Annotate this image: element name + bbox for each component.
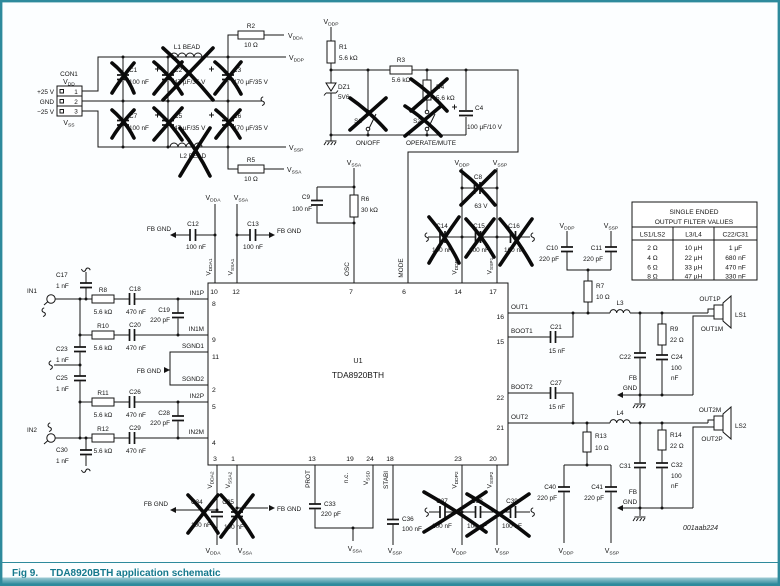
c23-value: 1 nF (56, 357, 69, 364)
r8-ref: R8 (99, 287, 108, 294)
svg-text:1 µF: 1 µF (729, 245, 742, 252)
resistor-r3 (390, 66, 412, 74)
ic-pin-21: 21 (496, 425, 504, 432)
r9-value: 22 Ω (670, 337, 684, 344)
r2-ref: R2 (247, 23, 256, 30)
c24-ref: C24 (671, 354, 683, 361)
r11-value: 5.6 kΩ (94, 412, 113, 419)
c36-ref: C36 (402, 516, 414, 523)
operate-mute-label: OPERATE/MUTE (406, 140, 456, 147)
c40-value: 220 pF (537, 495, 557, 502)
con1-pin-3: 3 (74, 109, 78, 116)
r5-ref: R5 (247, 157, 256, 164)
c28-ref: C28 (158, 410, 170, 417)
c30-ref: C30 (56, 447, 68, 454)
svg-text:47 µH: 47 µH (685, 274, 703, 281)
c20-value: 470 nF (126, 345, 146, 352)
c19-ref: C19 (158, 307, 170, 314)
ic-pin-8: 8 (212, 301, 216, 308)
pin-label-osc: OSC (344, 262, 351, 276)
resistor-r10 (92, 331, 114, 339)
c33-value: 220 pF (321, 511, 341, 518)
schematic-page: CON1 VDD VSS +25 V GND −25 V 1 2 3 L1 BE… (0, 0, 780, 586)
dz1-value: 5V6 (338, 94, 350, 101)
svg-text:680 nF: 680 nF (725, 255, 746, 262)
out2-pin-label: OUT2 (511, 414, 528, 421)
figure-number: Fig 9. (12, 568, 38, 579)
r10-value: 5.6 kΩ (94, 345, 113, 352)
on-off-label: ON/OFF (356, 140, 380, 147)
filter-values-table: SINGLE ENDED OUTPUT FILTER VALUES LS1/LS… (632, 202, 757, 281)
resistor-r8 (92, 295, 114, 303)
pin-label-mode: MODE (398, 258, 405, 277)
c23-ref: C23 (56, 346, 68, 353)
resistor-r13 (583, 432, 591, 452)
in1-label: IN1 (27, 288, 37, 295)
l3-ref: L3 (616, 300, 624, 307)
c18-value: 470 nF (126, 309, 146, 316)
c32-value-l1: 100 (671, 473, 682, 480)
c25-ref: C25 (56, 375, 68, 382)
c26-value: 470 nF (126, 412, 146, 419)
fb-gnd-label: FB GND (144, 501, 169, 508)
gnd-label: GND (623, 499, 638, 506)
c31-ref: C31 (619, 463, 631, 470)
resistor-r11 (92, 398, 114, 406)
table-col-header-2: C22/C31 (722, 232, 748, 239)
dz1-ref: DZ1 (338, 84, 351, 91)
in2m-pin-label: IN2M (189, 429, 204, 436)
ic-tda8920bth: U1 TDA8920BTH 10 12 7 6 14 17 8 9 11 2 5… (206, 257, 509, 489)
ls1-ref: LS1 (735, 312, 747, 319)
c41-value: 220 pF (584, 495, 604, 502)
c4-value: 100 µF/10 V (467, 124, 503, 131)
c3-value: 470 µF/35 V (233, 79, 269, 86)
speaker-ls1-icon (714, 305, 723, 319)
r3-ref: R3 (397, 57, 406, 64)
ic-pin-4: 4 (212, 440, 216, 447)
c29-value: 470 nF (126, 448, 146, 455)
l4-ref: L4 (616, 410, 624, 417)
ic-part-number: TDA8920BTH (332, 370, 384, 380)
con1-pin-1: 1 (74, 89, 78, 96)
pin-label-prot: PROT (305, 470, 312, 488)
c29-ref: C29 (129, 425, 141, 432)
gnd-label: GND (623, 385, 638, 392)
l1-bead-label: L1 BEAD (174, 44, 201, 51)
ic-pin-24: 24 (366, 456, 374, 463)
schematic-canvas: CON1 VDD VSS +25 V GND −25 V 1 2 3 L1 BE… (0, 0, 780, 586)
switch-s2-icon (425, 110, 429, 114)
table-title-line2: OUTPUT FILTER VALUES (655, 219, 734, 226)
ic-ref: U1 (353, 356, 362, 365)
bottom-accent-bar (2, 578, 778, 585)
figure-title: TDA8920BTH application schematic (50, 568, 221, 579)
c4-ref: C4 (475, 105, 484, 112)
r3-value: 5.6 kΩ (392, 77, 411, 84)
svg-text:2 Ω: 2 Ω (647, 245, 657, 252)
ic-pin-15: 15 (496, 339, 504, 346)
resistor-r12 (92, 434, 114, 442)
c19-value: 220 pF (150, 317, 170, 324)
r6-ref: R6 (361, 196, 370, 203)
r5-value: 10 Ω (244, 176, 258, 183)
con1-pin-2: 2 (74, 99, 78, 106)
c10-ref: C10 (546, 245, 558, 252)
connector-con1 (57, 86, 82, 116)
ic-pin-14: 14 (454, 289, 462, 296)
r10-ref: R10 (97, 323, 109, 330)
r2-value: 10 Ω (244, 42, 258, 49)
r13-ref: R13 (595, 433, 607, 440)
svg-text:4 Ω: 4 Ω (647, 255, 657, 262)
table-title-line1: SINGLE ENDED (669, 209, 718, 216)
c6-value: 470 µF/35 V (233, 125, 269, 132)
speaker-ls2-icon (714, 416, 723, 430)
c40-ref: C40 (544, 484, 556, 491)
table-col-header-1: L3/L4 (685, 232, 702, 239)
ic-pin-11: 11 (212, 354, 219, 361)
r14-value: 22 Ω (670, 443, 684, 450)
fb-gnd-label: FB GND (137, 368, 162, 375)
c17-ref: C17 (56, 272, 68, 279)
fb-gnd-label: FB GND (277, 506, 302, 513)
ic-pin-6: 6 (402, 289, 406, 296)
resistor-r1 (327, 41, 335, 63)
fb-label: FB (629, 375, 637, 382)
resistor-r7 (584, 281, 592, 302)
ic-pin-13: 13 (308, 456, 316, 463)
svg-text:6 Ω: 6 Ω (647, 265, 657, 272)
r9-ref: R9 (670, 326, 679, 333)
pin-label-stabi: STABI (383, 471, 390, 489)
supply-plus25v-label: +25 V (37, 89, 55, 96)
c11-ref: C11 (591, 245, 603, 252)
ic-pin-1: 1 (231, 456, 235, 463)
c8-ref: C8 (474, 174, 483, 181)
r7-value: 10 Ω (596, 294, 610, 301)
c11-value: 220 pF (583, 256, 603, 263)
c24-value-l2: nF (671, 375, 679, 382)
ic-pin-16: 16 (496, 314, 504, 321)
c20-ref: C20 (129, 322, 141, 329)
r1-ref: R1 (339, 44, 348, 51)
out2p-label: OUT2P (701, 436, 722, 443)
ic-pin-19: 19 (346, 456, 354, 463)
r14-ref: R14 (670, 432, 682, 439)
c8-value: 63 V (474, 203, 488, 210)
boot2-pin-label: BOOT2 (511, 384, 533, 391)
ic-pin-22: 22 (496, 395, 504, 402)
svg-text:8 Ω: 8 Ω (647, 274, 657, 281)
in1m-pin-label: IN1M (189, 326, 204, 333)
c27-value: 15 nF (549, 404, 565, 411)
supply-gnd-label: GND (40, 99, 55, 106)
ic-pin-20: 20 (489, 456, 497, 463)
out2m-label: OUT2M (699, 407, 721, 414)
ic-pin-7: 7 (349, 289, 353, 296)
out1-pin-label: OUT1 (511, 304, 528, 311)
r12-ref: R12 (97, 426, 109, 433)
c21-ref: C21 (550, 324, 562, 331)
c32-ref: C32 (671, 462, 683, 469)
ic-pin-3: 3 (213, 456, 217, 463)
in2-label: IN2 (27, 427, 37, 434)
ic-pin-12: 12 (232, 289, 240, 296)
pin-label-nc: n.c. (343, 473, 350, 484)
c28-value: 220 pF (150, 420, 170, 427)
r7-ref: R7 (596, 283, 605, 290)
fb-label: FB (629, 489, 637, 496)
out1p-label: OUT1P (699, 296, 720, 303)
supply-minus25v-label: −25 V (37, 109, 55, 116)
sgnd2-pin-label: SGND2 (182, 376, 204, 383)
c13-ref: C13 (247, 221, 259, 228)
c26-ref: C26 (129, 389, 141, 396)
svg-text:22 µH: 22 µH (685, 255, 703, 262)
svg-text:10 µH: 10 µH (685, 245, 703, 252)
r11-ref: R11 (97, 390, 109, 397)
connector-ref: CON1 (60, 71, 78, 78)
c9-ref: C9 (302, 194, 311, 201)
c9-value: 100 nF (292, 206, 312, 213)
c13-value: 100 nF (243, 244, 263, 251)
svg-text:330 nF: 330 nF (725, 274, 746, 281)
sgnd1-pin-label: SGND1 (182, 343, 204, 350)
ic-pin-5: 5 (212, 404, 216, 411)
r1-value: 5.6 kΩ (339, 55, 358, 62)
resistor-r2 (238, 31, 264, 39)
resistor-r6 (350, 195, 358, 217)
svg-text:470 nF: 470 nF (725, 265, 746, 272)
ic-pin-10: 10 (210, 289, 218, 296)
fb-gnd-label: FB GND (277, 228, 302, 235)
ls2-ref: LS2 (735, 423, 747, 430)
c10-value: 220 pF (539, 256, 559, 263)
ic-pin-18: 18 (386, 456, 394, 463)
r12-value: 5.6 kΩ (94, 448, 113, 455)
ic-pin-17: 17 (489, 289, 497, 296)
out1m-label: OUT1M (701, 326, 723, 333)
c22-ref: C22 (619, 354, 631, 361)
c36-value: 100 nF (402, 526, 422, 533)
table-col-header-0: LS1/LS2 (640, 232, 666, 239)
c41-ref: C41 (591, 484, 603, 491)
c33-ref: C33 (324, 501, 336, 508)
resistor-r5 (238, 165, 264, 173)
svg-text:33 µH: 33 µH (685, 265, 703, 272)
c27-ref: C27 (550, 380, 562, 387)
fb-gnd-label: FB GND (147, 226, 172, 233)
resistor-r9 (658, 324, 666, 345)
r6-value: 30 kΩ (361, 207, 378, 214)
c32-value-l2: nF (671, 483, 679, 490)
ic-pin-23: 23 (454, 456, 462, 463)
in2p-pin-label: IN2P (190, 393, 204, 400)
c17-value: 1 nF (56, 283, 69, 290)
c21-value: 15 nF (549, 348, 565, 355)
ic-pin-2: 2 (212, 387, 216, 394)
ic-pin-9: 9 (212, 337, 216, 344)
r13-value: 10 Ω (595, 445, 609, 452)
c25-value: 1 nF (56, 386, 69, 393)
r8-value: 5.6 kΩ (94, 309, 113, 316)
drawing-code-watermark: 001aab224 (683, 525, 718, 532)
c12-ref: C12 (187, 221, 199, 228)
c24-value-l1: 100 (671, 365, 682, 372)
in1p-pin-label: IN1P (190, 290, 204, 297)
c30-value: 1 nF (56, 458, 69, 465)
c12-value: 100 nF (186, 244, 206, 251)
boot1-pin-label: BOOT1 (511, 328, 533, 335)
resistor-r14 (658, 430, 666, 450)
c18-ref: C18 (129, 286, 141, 293)
